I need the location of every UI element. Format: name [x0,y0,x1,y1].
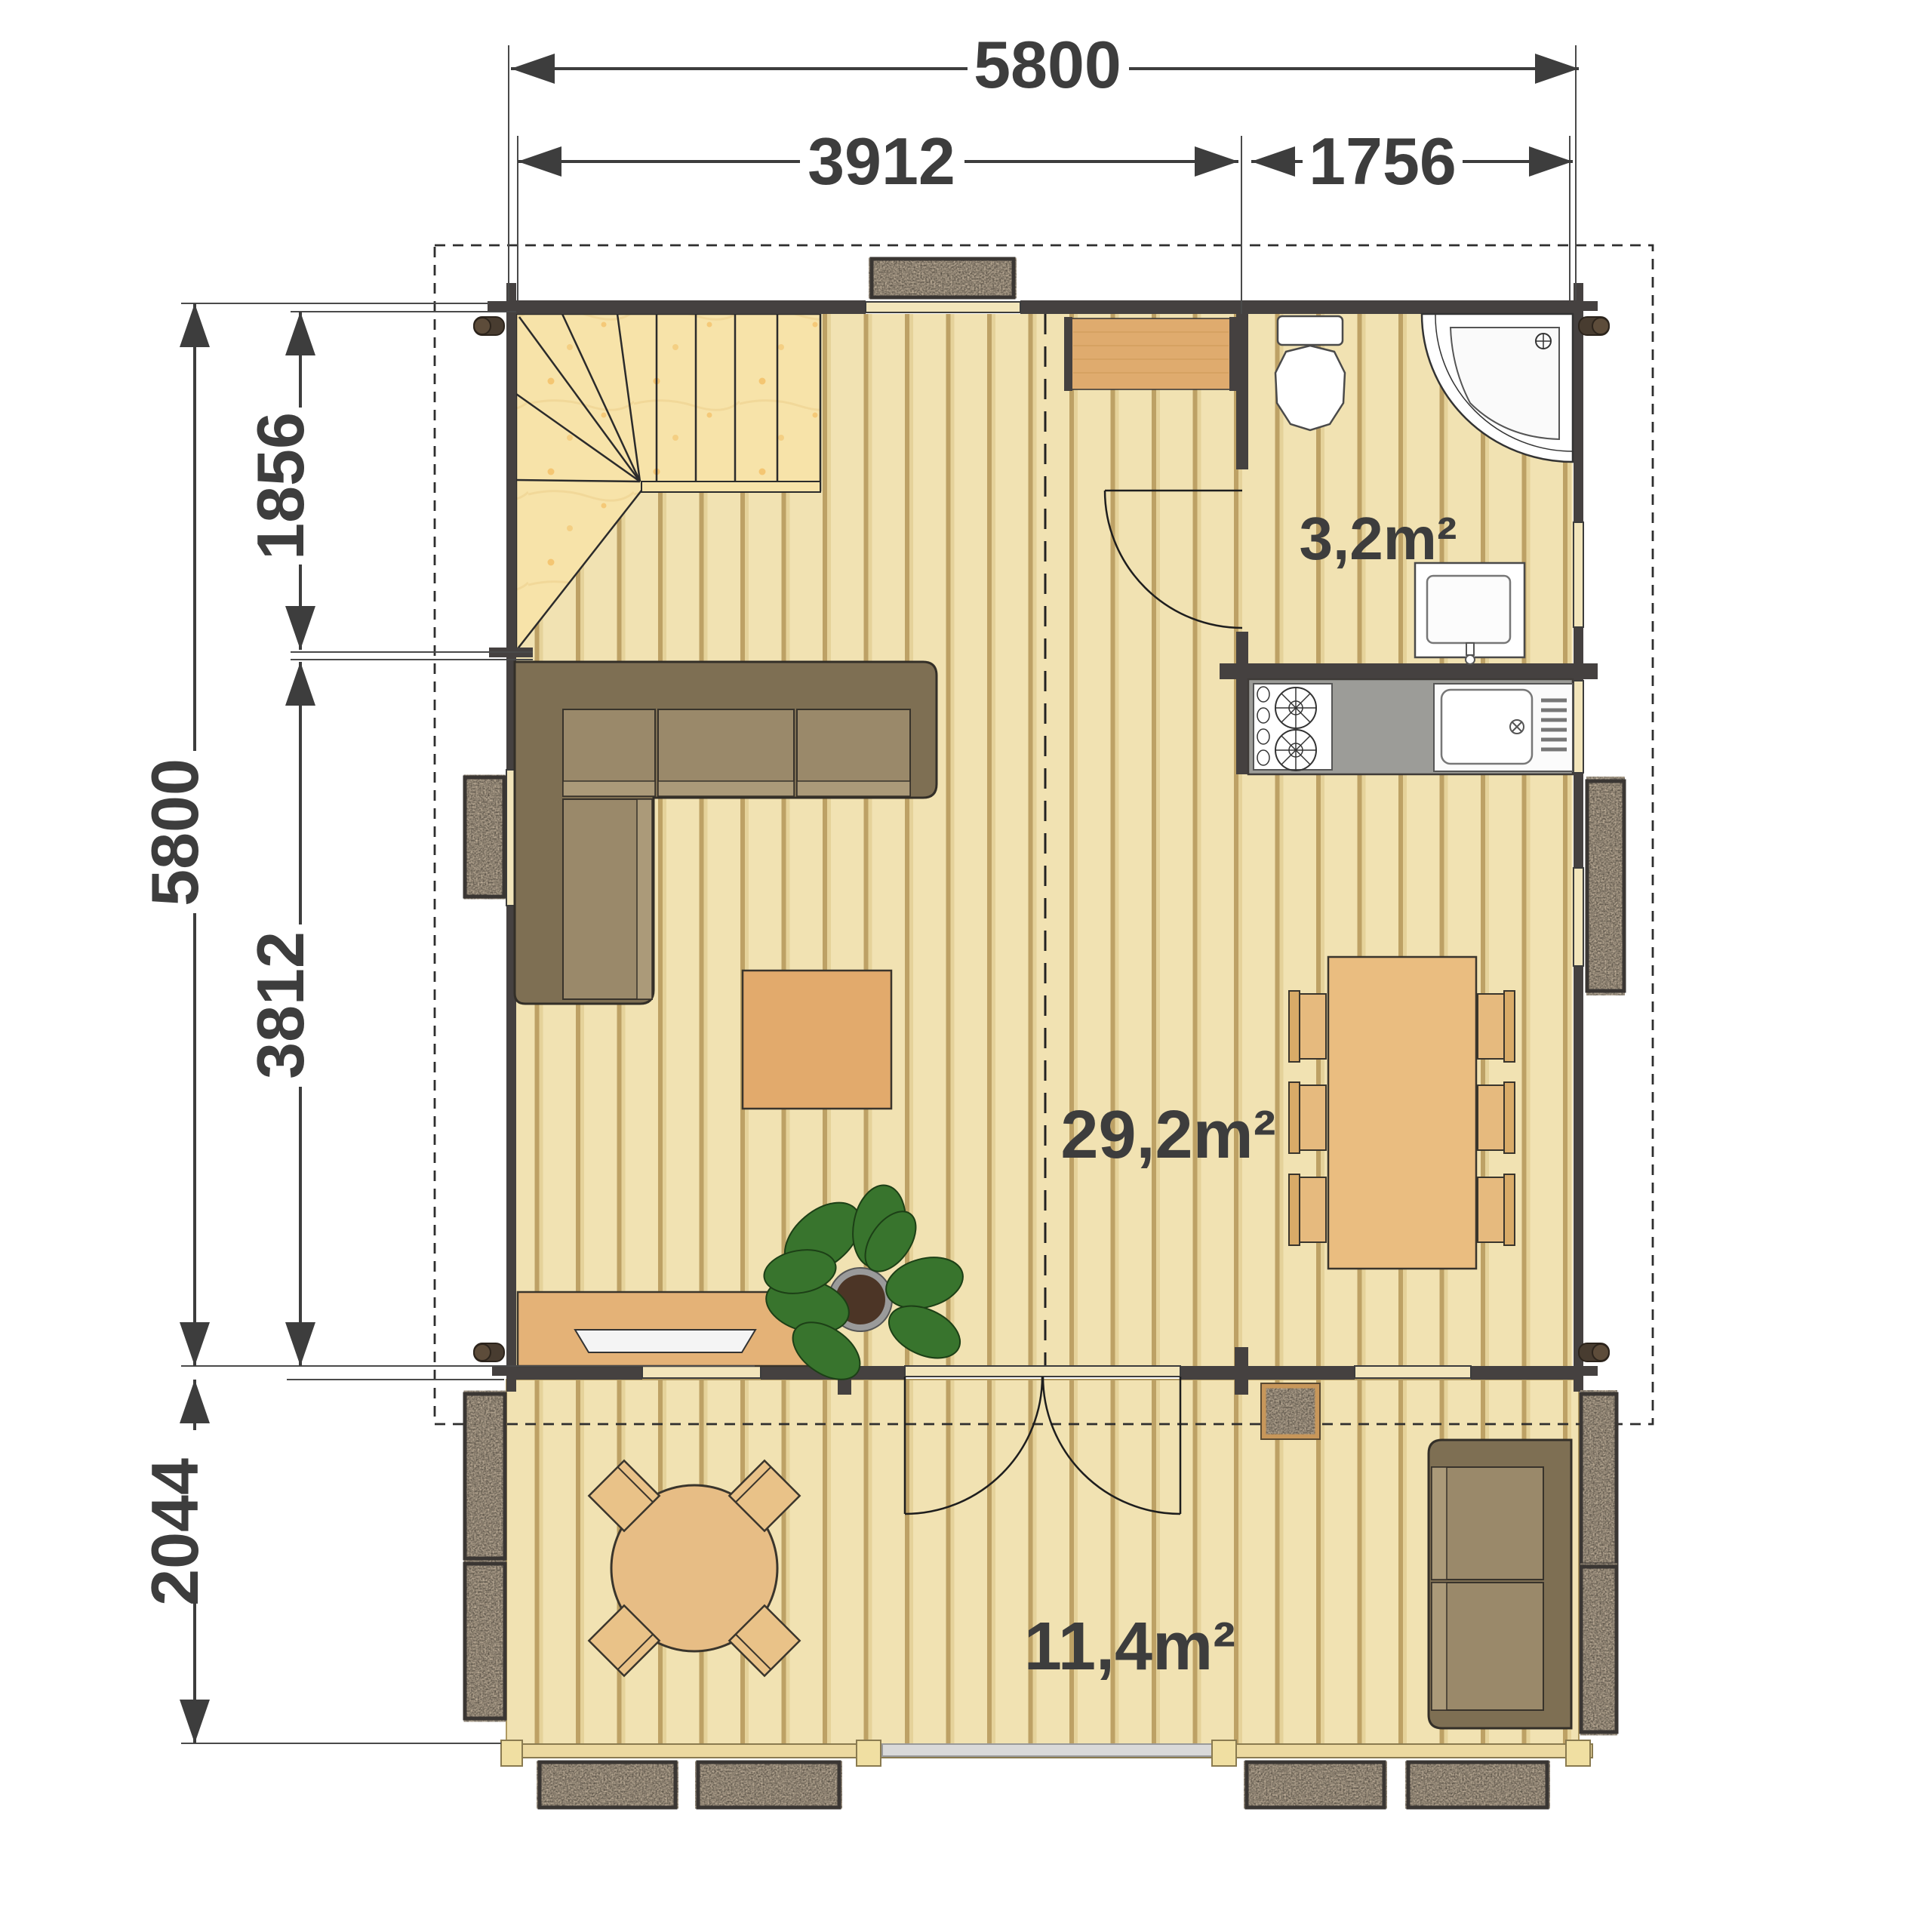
svg-text:3,2m²: 3,2m² [1300,505,1457,572]
svg-text:1856: 1856 [243,412,318,560]
svg-text:5800: 5800 [974,27,1121,102]
svg-text:1756: 1756 [1309,124,1457,198]
svg-text:11,4m²: 11,4m² [1024,1609,1235,1684]
svg-text:2044: 2044 [137,1458,212,1606]
svg-text:29,2m²: 29,2m² [1060,1097,1275,1173]
svg-text:3812: 3812 [243,931,318,1079]
svg-text:5800: 5800 [137,758,212,906]
svg-text:3912: 3912 [808,124,955,198]
